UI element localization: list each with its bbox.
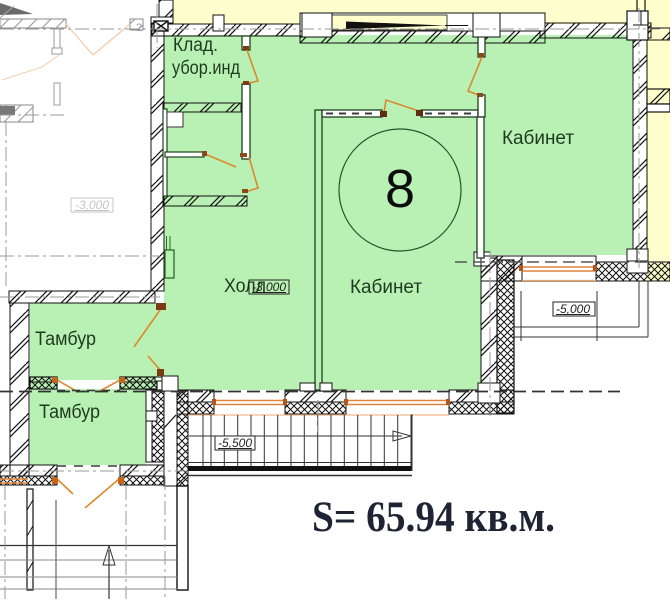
svg-text:Тамбур: Тамбур: [39, 402, 100, 423]
svg-text:2: 2: [136, 22, 142, 34]
svg-text:-3,000: -3,000: [75, 198, 109, 212]
svg-text:-5,000: -5,000: [556, 302, 590, 316]
svg-text:-3,000: -3,000: [252, 280, 286, 294]
svg-text:-5,500: -5,500: [218, 436, 252, 450]
svg-text:S= 65.94 кв.м.: S= 65.94 кв.м.: [312, 494, 555, 541]
svg-text:убор.инд: убор.инд: [172, 58, 240, 79]
svg-text:Клад.: Клад.: [173, 35, 218, 56]
svg-text:Кабинет: Кабинет: [350, 277, 422, 298]
svg-text:Тамбур: Тамбур: [35, 329, 96, 350]
svg-text:8: 8: [385, 159, 415, 219]
svg-text:Кабинет: Кабинет: [502, 128, 574, 149]
